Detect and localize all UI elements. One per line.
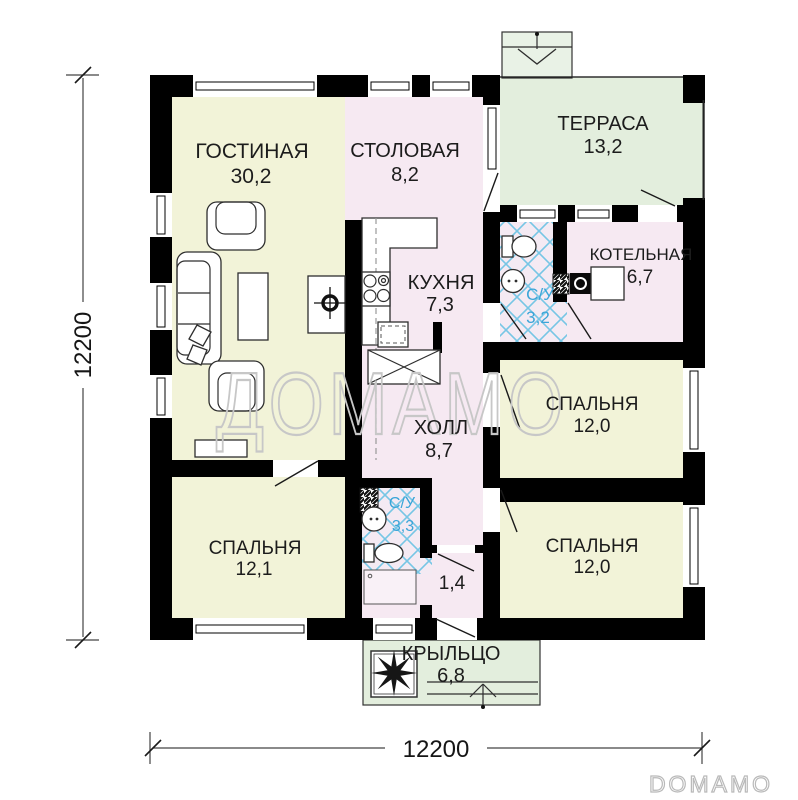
bath-top-area: 3,2 [526, 308, 550, 327]
toilet-tank [364, 544, 374, 562]
bedroom-right-bottom-label: СПАЛЬНЯ [546, 536, 639, 557]
washbasin [362, 507, 386, 531]
window [483, 105, 500, 172]
window [150, 193, 172, 237]
entrance-door [436, 618, 477, 640]
window [193, 618, 307, 640]
door-opening [483, 303, 500, 342]
watermark-center: ДОМАМО [216, 354, 568, 453]
wall-segment [420, 605, 432, 618]
window-sash [433, 82, 469, 90]
wall-segment [433, 322, 442, 353]
window-sash [690, 371, 698, 449]
toilet-bowl [512, 236, 536, 257]
window-sash [488, 108, 496, 169]
dining-room-area: 8,2 [391, 164, 419, 186]
boiler-counter [591, 267, 624, 300]
fireplace [308, 276, 346, 333]
living-room-label: ГОСТИНАЯ [195, 140, 308, 163]
porch-label: КРЫЛЬЦО [402, 643, 501, 665]
window-sash [371, 82, 409, 90]
kitchen-area: 7,3 [426, 294, 454, 316]
bath-bottom-area: 3,3 [392, 518, 414, 535]
terrace-label: ТЕРРАСА [557, 113, 649, 135]
window [517, 205, 558, 222]
floor-plan-page: ДОМАМО ГОСТИНАЯ 30,2 СТОЛОВАЯ 8,2 ТЕРРАС… [0, 0, 798, 800]
washbasin-tap-dot [515, 280, 518, 283]
window-sash [196, 625, 304, 633]
window [430, 75, 472, 97]
floor-plan-canvas: ДОМАМО ГОСТИНАЯ 30,2 СТОЛОВАЯ 8,2 ТЕРРАС… [0, 0, 798, 800]
bath-top-label: С/У [526, 285, 554, 304]
coffee-table-outline [238, 273, 268, 340]
window [683, 505, 705, 587]
dining-room-label: СТОЛОВАЯ [350, 140, 460, 162]
boiler-unit [570, 273, 591, 294]
door-opening [483, 488, 500, 532]
coffee-table [238, 273, 268, 340]
boiler-room-label: КОТЕЛЬНАЯ [590, 245, 693, 264]
washbasin [502, 270, 525, 293]
window-sash [578, 210, 609, 218]
window-sash [690, 508, 698, 584]
dim-text-left: 12200 [70, 312, 97, 379]
window-sash [157, 286, 165, 327]
hall-label: ХОЛЛ [414, 417, 468, 439]
kitchen-label: КУХНЯ [408, 272, 475, 294]
window [150, 375, 172, 418]
wall-segment [150, 75, 172, 640]
bedroom-right-top-label: СПАЛЬНЯ [546, 394, 639, 415]
door-opening [437, 545, 475, 553]
bath-bottom-label: С/У [389, 495, 416, 512]
toilet-bowl [375, 544, 403, 563]
stair-arrow-dot [535, 32, 539, 36]
window [575, 205, 612, 222]
armchair-top [207, 202, 265, 250]
terrace-door [483, 172, 500, 212]
vent-shaft [553, 274, 569, 294]
window [193, 75, 317, 97]
window [373, 618, 415, 640]
wall-segment [420, 488, 432, 558]
dim-text-bottom: 12200 [403, 736, 470, 763]
sofa [177, 252, 221, 365]
wall-segment [483, 478, 705, 502]
living-room-area: 30,2 [231, 165, 272, 188]
bedroom-right-bottom-area: 12,0 [574, 557, 611, 578]
stair-arrow-dot [481, 705, 485, 709]
boiler-room-area: 6,7 [627, 267, 653, 288]
bedroom-left-label: СПАЛЬНЯ [209, 538, 302, 559]
porch-area: 6,8 [437, 665, 465, 687]
bedroom-right-top-area: 12,0 [574, 416, 611, 437]
watermark-corner: DOMAMO [649, 771, 773, 797]
door-opening [638, 205, 677, 222]
window [683, 368, 705, 452]
window-sash [157, 378, 165, 415]
washbasin-tap-dot [376, 518, 379, 521]
wall-segment [360, 478, 432, 488]
wall-segment [150, 460, 352, 477]
window [368, 75, 412, 97]
vestibule-area: 1,4 [439, 573, 466, 594]
window-sash [520, 210, 555, 218]
window-sash [196, 82, 314, 90]
window-sash [376, 625, 412, 633]
terrace-area: 13,2 [584, 136, 623, 158]
window [150, 283, 172, 330]
washbasin-tap-dot [508, 280, 511, 283]
washbasin-tap-dot [370, 518, 373, 521]
hall-area: 8,7 [425, 440, 453, 462]
wall-segment [683, 75, 705, 103]
window-sash [157, 196, 165, 234]
bedroom-left-area: 12,1 [236, 559, 273, 580]
